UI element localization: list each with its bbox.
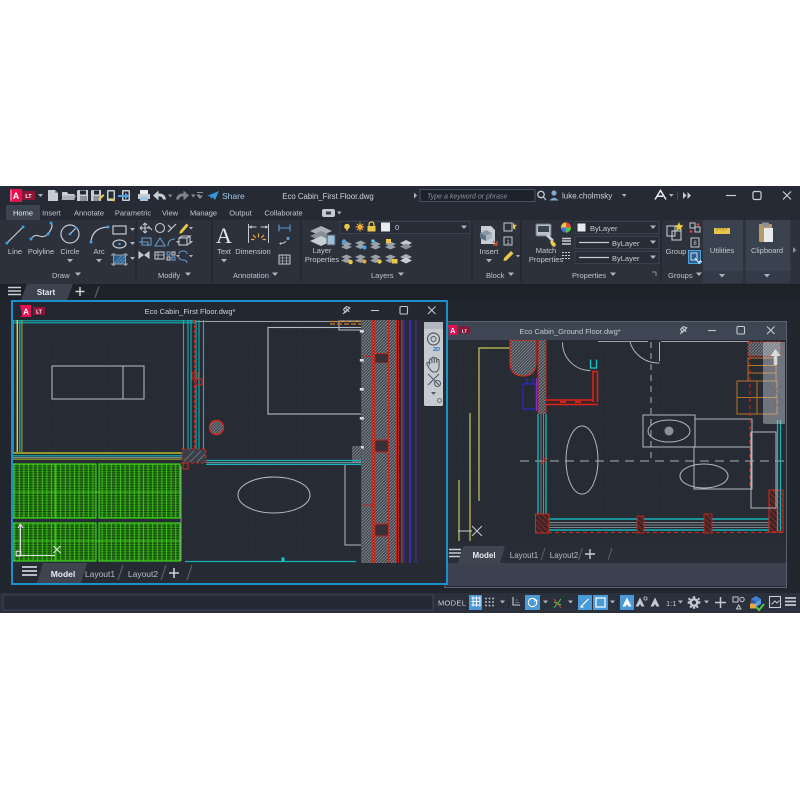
svg-text:Properties: Properties <box>572 271 606 280</box>
svg-text:Share: Share <box>222 191 245 201</box>
svg-text:Group: Group <box>666 247 687 256</box>
svg-text:View: View <box>162 209 179 218</box>
svg-text:Start: Start <box>37 288 56 297</box>
svg-text:Modify: Modify <box>158 271 180 280</box>
svg-text:Collaborate: Collaborate <box>264 209 302 218</box>
svg-text:Polyline: Polyline <box>28 247 54 256</box>
svg-text:Utilities: Utilities <box>710 246 734 255</box>
svg-text:LT: LT <box>36 310 42 316</box>
svg-text:A: A <box>450 328 455 335</box>
svg-text:A: A <box>23 308 29 317</box>
svg-text:Properties: Properties <box>529 255 563 264</box>
svg-text:Output: Output <box>229 209 252 218</box>
svg-text:LT: LT <box>462 328 467 333</box>
svg-text:Properties: Properties <box>305 255 339 264</box>
svg-text:Draw: Draw <box>52 271 70 280</box>
svg-text:2D: 2D <box>433 347 440 353</box>
svg-text:Eco Cabin_Ground Floor.dwg*: Eco Cabin_Ground Floor.dwg* <box>519 327 620 336</box>
svg-text:Match: Match <box>536 246 556 255</box>
svg-text:Model: Model <box>51 569 76 579</box>
svg-text:MODEL: MODEL <box>438 599 466 608</box>
svg-text:Layers: Layers <box>371 271 394 280</box>
svg-text:ByLayer: ByLayer <box>612 254 640 263</box>
svg-text:Layout2: Layout2 <box>550 551 579 560</box>
svg-text:A: A <box>13 191 20 201</box>
svg-text:Groups: Groups <box>668 271 693 280</box>
svg-text:Model: Model <box>472 551 495 560</box>
svg-text:A: A <box>216 223 232 248</box>
svg-text:Dimension: Dimension <box>235 247 270 256</box>
svg-text:8: 8 <box>693 241 697 247</box>
svg-text:Layout1: Layout1 <box>510 551 539 560</box>
svg-text:Annotation: Annotation <box>233 271 269 280</box>
svg-text:0: 0 <box>395 223 399 232</box>
svg-text:Insert: Insert <box>42 209 62 218</box>
svg-text:Eco Cabin_First Floor.dwg: Eco Cabin_First Floor.dwg <box>282 192 373 201</box>
svg-text:Home: Home <box>13 209 33 218</box>
svg-text:Type a keyword or phrase: Type a keyword or phrase <box>427 194 508 201</box>
svg-text:Insert: Insert <box>480 247 500 256</box>
svg-text:ByLayer: ByLayer <box>590 224 618 233</box>
svg-text:Block: Block <box>486 271 505 280</box>
svg-text:Manage: Manage <box>190 209 217 218</box>
svg-text:Eco Cabin_First Floor.dwg*: Eco Cabin_First Floor.dwg* <box>145 307 236 316</box>
svg-text:Annotate: Annotate <box>74 209 104 218</box>
svg-text:Parametric: Parametric <box>115 209 152 218</box>
svg-text:1:1: 1:1 <box>666 599 676 608</box>
svg-text:Layout2: Layout2 <box>128 569 159 579</box>
svg-text:Clipboard: Clipboard <box>751 246 783 255</box>
svg-text:ByLayer: ByLayer <box>612 239 640 248</box>
svg-text:Arc: Arc <box>93 247 105 256</box>
svg-text:LT: LT <box>25 194 32 200</box>
svg-text:Text: Text <box>217 247 232 256</box>
svg-text:Layout1: Layout1 <box>85 569 116 579</box>
svg-text:Line: Line <box>8 247 22 256</box>
svg-text:Circle: Circle <box>60 247 79 256</box>
svg-text:luke.cholmsky: luke.cholmsky <box>562 192 612 201</box>
svg-text:Layer: Layer <box>313 246 332 255</box>
